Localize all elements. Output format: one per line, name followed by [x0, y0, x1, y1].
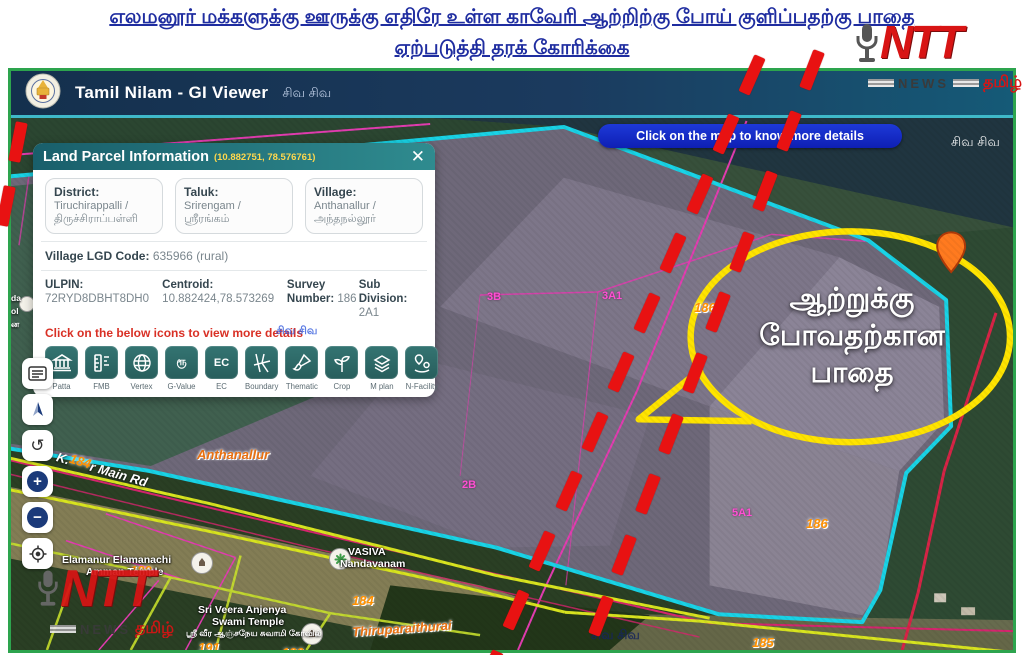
bubble-line1: ஆற்றுக்கு: [707, 281, 997, 318]
map-label: சிவ சிவ: [591, 627, 640, 644]
microphone-icon: [854, 22, 880, 71]
microphone-icon: [36, 566, 60, 617]
ec-button[interactable]: EC EC: [205, 346, 238, 391]
fmb-button[interactable]: FMB: [85, 346, 118, 391]
ruler-icon: [85, 346, 118, 379]
brand-name: NTT: [880, 22, 960, 62]
map-label: ol: [11, 306, 19, 316]
taluk-box: Taluk: Srirengam / ஸ்ரீரங்கம்: [175, 178, 293, 234]
ntt-news-logo: NTT NEWS தமிழ்: [854, 22, 1024, 93]
zoom-in-button[interactable]: +: [22, 466, 53, 497]
boundary-button[interactable]: Boundary: [245, 346, 278, 391]
bubble-line2: போவதற்கான: [707, 318, 997, 355]
map-label: ன: [11, 319, 19, 331]
map-info-button[interactable]: Click on the map to know more details: [598, 124, 902, 148]
pins-icon: [405, 346, 438, 379]
ulpin-value: 72RYD8DBHT8DH0: [45, 293, 149, 305]
district-box: District: Tiruchirappalli / திருச்சிராப்…: [45, 178, 163, 234]
brand-news: NEWS: [80, 622, 131, 637]
centroid-label: Centroid:: [162, 278, 287, 292]
map-label: Sri Veera Anjenya: [198, 604, 286, 616]
map-label: 186: [806, 516, 828, 531]
icons-hint: Click on the below icons to view more de…: [45, 326, 423, 340]
subdivision-col: Sub Division: 2A1: [359, 278, 423, 320]
map-label: Nandavanam: [340, 558, 405, 570]
panel-watermark: சிவ சிவ: [276, 325, 317, 339]
brand-news: NEWS: [898, 76, 949, 91]
map-label: 3B: [487, 291, 501, 303]
brand-tamil: தமிழ்: [983, 73, 1022, 93]
panel-body: District: Tiruchirappalli / திருச்சிராப்…: [33, 170, 435, 397]
lgd-code-row: Village LGD Code: 635966 (rural): [45, 249, 423, 263]
globe-icon: [125, 346, 158, 379]
lgd-value: 635966 (rural): [153, 249, 228, 263]
brand-tamil: தமிழ்: [135, 619, 174, 639]
logo-bar-right: [953, 79, 979, 87]
ulpin-label: ULPIN:: [45, 278, 162, 292]
speech-bubble-text: ஆற்றுக்கு போவதற்கான பாதை: [707, 281, 997, 392]
district-value-en: Tiruchirappalli /: [54, 200, 154, 212]
vertex-button[interactable]: Vertex: [125, 346, 158, 391]
map-label: 3A1: [602, 290, 622, 302]
map-label: Swami Temple: [212, 616, 284, 628]
layers-icon: [365, 346, 398, 379]
map-label: VASIVA: [348, 546, 386, 558]
map-label: 190: [282, 645, 304, 650]
ec-icon: EC: [205, 346, 238, 379]
thematic-button[interactable]: Thematic: [285, 346, 318, 391]
district-value-ta: திருச்சிராப்பள்ளி: [54, 213, 154, 227]
rupee-icon: ரூ: [165, 346, 198, 379]
brand-name: NTT: [60, 566, 152, 612]
plant-icon: [325, 346, 358, 379]
boundary-icon: [245, 346, 278, 379]
centroid-col: Centroid: 10.882424,78.573269: [162, 278, 287, 320]
map-label: 185: [752, 635, 774, 650]
land-parcel-panel: Land Parcel Information (10.882751, 78.5…: [33, 143, 435, 397]
survey-number-label: Survey Number:: [287, 279, 334, 305]
legend-button[interactable]: [22, 358, 53, 389]
taluk-value-en: Srirengam /: [184, 200, 284, 212]
screenshot-stage: எலமனூர் மக்களுக்கு ஊருக்கு எதிரே உள்ள கா…: [0, 0, 1024, 655]
ntt-watermark: NTT NEWS தமிழ்: [36, 566, 206, 639]
n-facility-button[interactable]: N-Facility: [405, 346, 438, 391]
brush-icon: [285, 346, 318, 379]
village-value-en: Anthanallur /: [314, 200, 414, 212]
zoom-out-button[interactable]: −: [22, 502, 53, 533]
village-label: Village:: [314, 185, 414, 199]
tamilnadu-govt-emblem-icon: [25, 73, 61, 114]
viewer-title: Tamil Nilam - GI Viewer: [75, 83, 268, 103]
map-label: 5A1: [732, 507, 752, 519]
map-label: 191: [198, 640, 220, 650]
bubble-line3: பாதை: [707, 355, 997, 392]
map-label: da: [11, 293, 21, 303]
map-label: 184: [352, 593, 374, 608]
g-value-button[interactable]: ரூ G-Value: [165, 346, 198, 391]
panel-header: Land Parcel Information (10.882751, 78.5…: [33, 143, 435, 170]
map-toolbar: ↺ + −: [22, 358, 53, 569]
village-box: Village: Anthanallur / அந்தநல்லூர்: [305, 178, 423, 234]
centroid-value: 10.882424,78.573269: [162, 293, 274, 305]
lgd-label: Village LGD Code:: [45, 249, 149, 263]
village-value-ta: அந்தநல்லூர்: [314, 213, 414, 227]
feature-icon-row: Patta FMB Vertex ரூ G-Value: [45, 346, 423, 391]
taluk-value-ta: ஸ்ரீரங்கம்: [184, 213, 284, 227]
logo-bar-left: [868, 79, 894, 87]
compass-button[interactable]: [22, 394, 53, 425]
crop-button[interactable]: Crop: [325, 346, 358, 391]
reset-button[interactable]: ↺: [22, 430, 53, 461]
close-icon[interactable]: ✕: [411, 148, 425, 165]
survey-col: Survey Number: 186: [287, 278, 359, 320]
map-label: சிவ சிவ: [951, 134, 1000, 151]
map-label: 2B: [462, 479, 476, 491]
header-watermark: சிவ சிவ: [282, 85, 331, 102]
panel-coordinates: (10.882751, 78.576761): [214, 152, 315, 163]
subdivision-value: 2A1: [359, 307, 379, 319]
taluk-label: Taluk:: [184, 185, 284, 199]
ulpin-col: ULPIN: 72RYD8DBHT8DH0: [45, 278, 162, 320]
survey-number-value: 186: [337, 293, 356, 305]
locate-button[interactable]: [22, 538, 53, 569]
panel-title: Land Parcel Information: [43, 149, 209, 165]
map-label: Anthanallur: [197, 447, 269, 462]
m-plan-button[interactable]: M plan: [365, 346, 398, 391]
district-label: District:: [54, 185, 154, 199]
map-label: ஸ்ரீ வீர ஆஞ்சநேய சுவாமி கோவில்: [186, 628, 322, 640]
subdivision-label: Sub Division:: [359, 279, 408, 305]
logo-bar-left: [50, 625, 76, 633]
